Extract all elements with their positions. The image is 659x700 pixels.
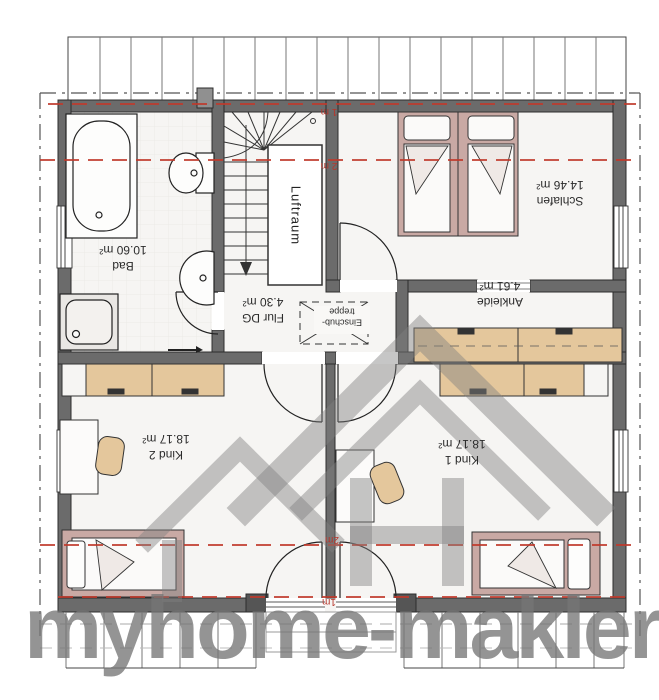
opening-ankleide — [477, 280, 530, 292]
dormer-footprint — [266, 612, 396, 652]
floor-plan-drawing — [0, 0, 659, 700]
window-schlafen-right — [614, 206, 628, 268]
double-bed-schlafen — [398, 112, 518, 236]
roof-rafters-bottom — [40, 612, 640, 668]
luftraum-opening — [268, 145, 322, 285]
shower — [60, 294, 118, 350]
bed-kind1 — [472, 532, 600, 595]
window-kind1-right — [614, 430, 628, 492]
bathtub — [66, 114, 137, 238]
roof-rafters-top — [68, 37, 626, 100]
wardrobe-kind2 — [62, 364, 224, 396]
floor-plan-page: Bad 10.60 m² Schlafen 14.46 m² Flur DG 4… — [0, 0, 659, 700]
